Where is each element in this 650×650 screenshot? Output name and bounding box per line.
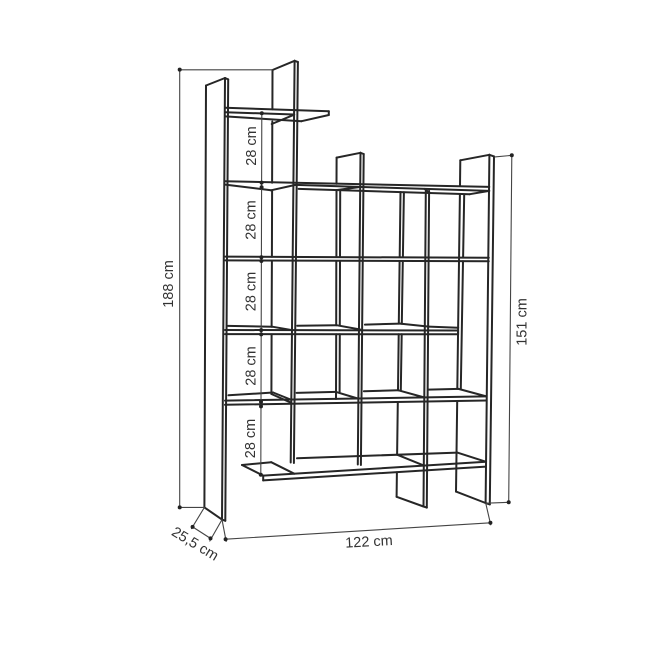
svg-text:188 cm: 188 cm	[161, 260, 177, 308]
svg-text:151 cm: 151 cm	[515, 298, 531, 346]
svg-text:122 cm: 122 cm	[345, 533, 393, 552]
svg-text:28 cm: 28 cm	[244, 126, 260, 166]
svg-text:28 cm: 28 cm	[244, 272, 260, 312]
svg-text:28 cm: 28 cm	[243, 419, 259, 459]
svg-text:28 cm: 28 cm	[244, 200, 260, 240]
svg-text:28 cm: 28 cm	[243, 346, 259, 386]
